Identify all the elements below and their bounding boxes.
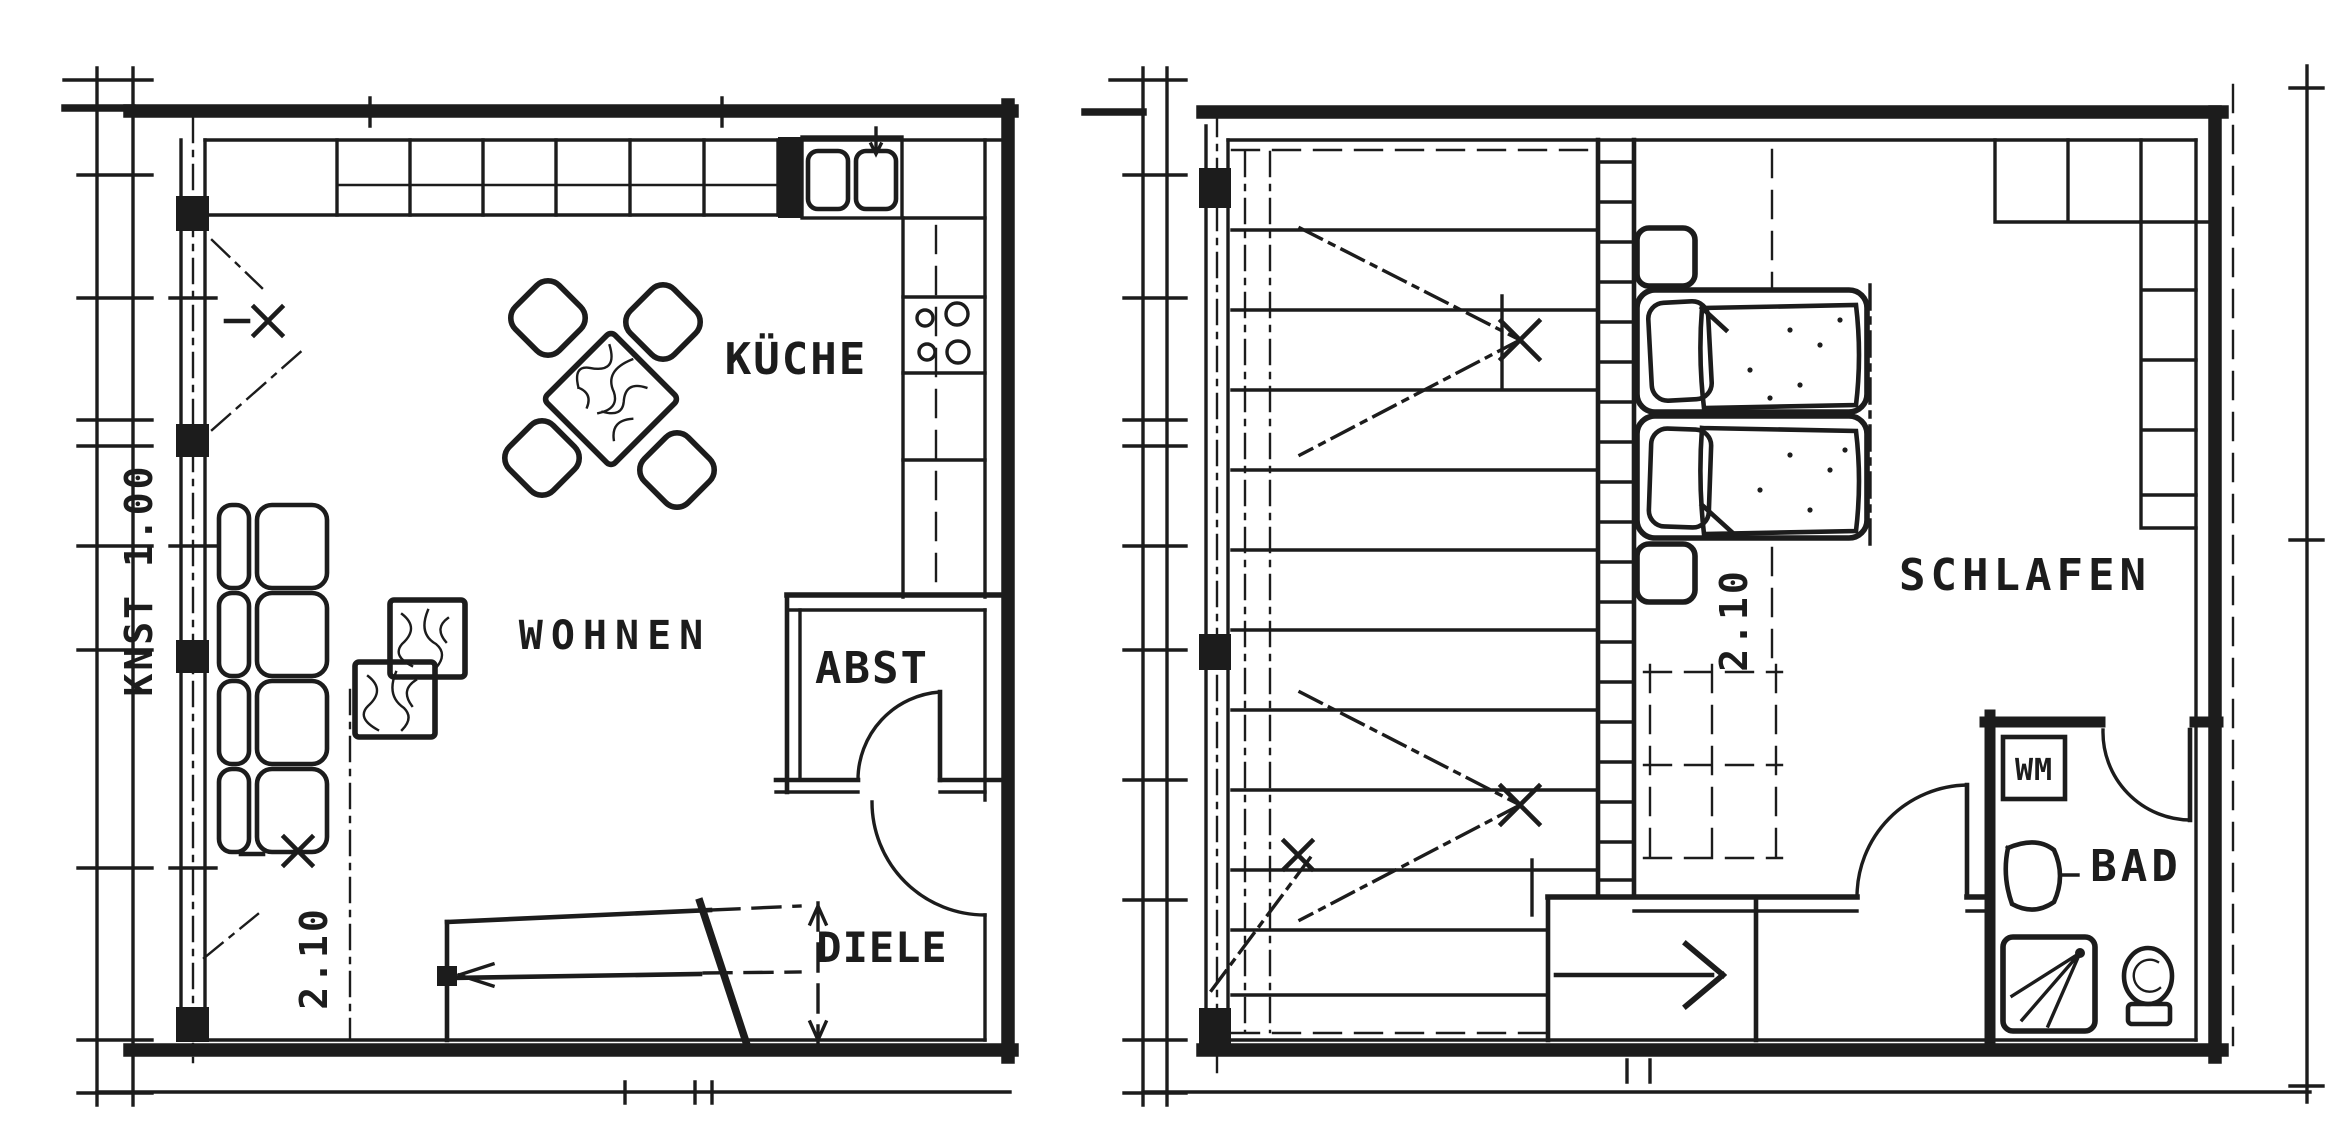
window-wall-left [170,118,216,1062]
floor-plan-sheet: KÜCHE WOHNEN ABST DIELE KNST 1.00 2.10 [0,0,2329,1137]
wardrobe [1995,140,2215,528]
entrance-door [872,802,985,915]
bedroom-wall-bottom [1548,785,1990,911]
kitchen-counter-right [903,218,985,597]
staircase [437,902,826,1045]
shower [2003,937,2095,1031]
roof-window-marks [1208,228,1539,995]
wohnen-label: WOHNEN [519,613,712,659]
diele-label: DIELE [816,923,947,972]
headroom-lines [1644,150,1782,860]
stairwell [1548,897,1756,1040]
knst-dimension: KNST 1.00 [117,464,161,697]
height-dimension-upper: 2.10 [1712,568,1756,672]
bedroom-door [1857,785,1967,897]
toilet [2124,948,2172,1024]
abst-label: ABST [815,643,929,694]
bed [1637,416,1867,538]
floor-plan-drawing: KÜCHE WOHNEN ABST DIELE KNST 1.00 2.10 [0,0,2329,1137]
eaves-edge-left [1085,68,1186,1105]
upper-floor-plan: WM BAD SCHLAFEN 2.10 [1085,66,2323,1105]
roof-slope-lines [1232,150,1596,1033]
nightstand [1637,544,1695,602]
coffee-tables [355,600,465,737]
sofa [219,505,327,852]
partition-wall [1598,140,1634,897]
wm-label: WM [2015,753,2053,788]
beds [1637,228,1870,602]
dining-set [498,274,721,514]
bad-label: BAD [2090,841,2181,892]
storage-door [858,692,940,780]
height-dimension: 2.10 [292,906,336,1010]
nightstand [1637,228,1695,286]
bathroom-door [2103,730,2190,820]
schlafen-label: SCHLAFEN [1899,550,2151,601]
kitchen-counter-top [205,137,802,218]
washing-machine: WM [2003,737,2065,799]
stove [917,303,969,363]
window-wall-left-upper [1199,112,1231,1072]
kueche-label: KÜCHE [725,332,867,385]
ground-floor-plan: KÜCHE WOHNEN ABST DIELE KNST 1.00 2.10 [64,68,1012,1105]
chair [504,274,592,362]
bathroom: WM BAD [1985,715,2218,1050]
chair [633,426,721,514]
washbasin [2006,842,2078,909]
bed [1637,290,1867,412]
